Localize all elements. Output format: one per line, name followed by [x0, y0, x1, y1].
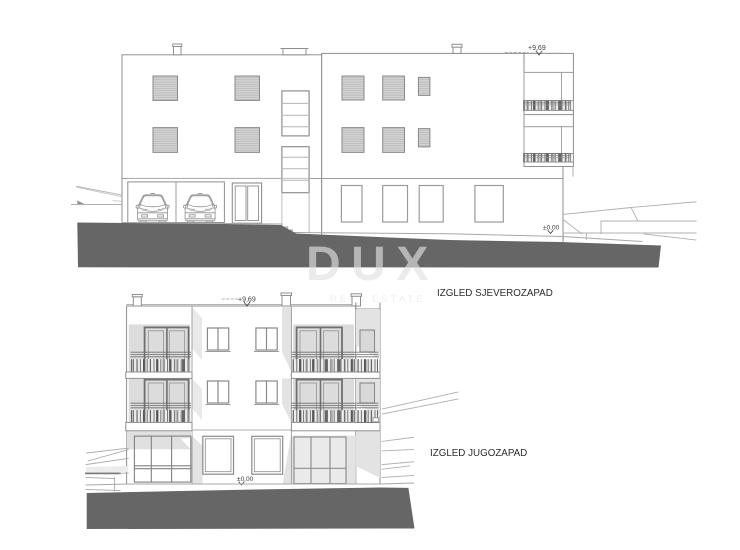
- svg-text:+9,69: +9,69: [528, 45, 546, 52]
- svg-text:DUX: DUX: [306, 238, 439, 291]
- svg-text:REAL ESTATE: REAL ESTATE: [330, 294, 426, 305]
- svg-text:±0,00: ±0,00: [543, 225, 560, 232]
- svg-text:+9,69: +9,69: [238, 297, 256, 304]
- svg-text:IZGLED JUGOZAPAD: IZGLED JUGOZAPAD: [430, 448, 527, 459]
- svg-text:±0,00: ±0,00: [237, 476, 254, 483]
- svg-text:IZGLED SJEVEROZAPAD: IZGLED SJEVEROZAPAD: [437, 288, 553, 299]
